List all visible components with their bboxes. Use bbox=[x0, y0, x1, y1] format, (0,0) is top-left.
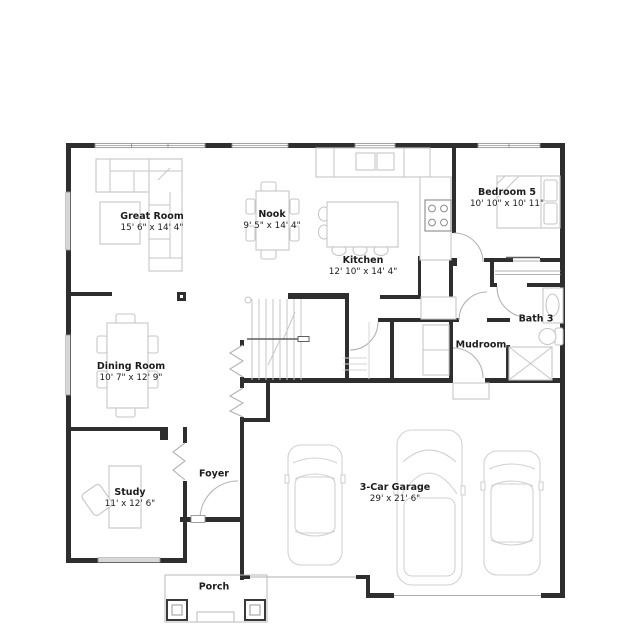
room-name: Kitchen bbox=[329, 255, 398, 267]
room-name: Foyer bbox=[199, 468, 229, 480]
room-name: Bedroom 5 bbox=[470, 187, 544, 199]
room-dims: 10' 7" x 12' 9" bbox=[97, 372, 165, 383]
room-label-bedroom5: Bedroom 5 10' 10" x 10' 11" bbox=[470, 187, 544, 210]
room-dims: 11' x 12' 6" bbox=[105, 498, 155, 509]
room-name: Nook bbox=[243, 209, 300, 221]
kitchen-sink-right bbox=[377, 153, 394, 170]
room-name: 3-Car Garage bbox=[360, 482, 430, 494]
bedroom-closet-rod bbox=[495, 271, 561, 275]
room-label-nook: Nook 9' 5" x 14' 4" bbox=[243, 209, 300, 232]
garage-step bbox=[453, 383, 489, 399]
room-label-foyer: Foyer bbox=[199, 468, 229, 480]
front-door-swing bbox=[200, 481, 238, 519]
bedroom5-door-swing bbox=[454, 233, 483, 262]
room-name: Mudroom bbox=[456, 339, 507, 351]
room-name: Study bbox=[105, 487, 155, 499]
room-dims: 9' 5" x 14' 4" bbox=[243, 220, 300, 231]
great-room-window-triple bbox=[95, 143, 205, 147]
car-icon-left bbox=[285, 445, 345, 565]
room-label-great-room: Great Room 15' 6" x 14' 4" bbox=[120, 211, 183, 234]
hall-closet-bifold-upper bbox=[230, 345, 243, 377]
mudroom-lockers bbox=[423, 325, 449, 375]
hall-closet-bifold-lower bbox=[230, 388, 243, 417]
car-icon-right bbox=[481, 451, 543, 575]
study-front-window bbox=[98, 558, 160, 562]
garage-entry-door-swing bbox=[453, 348, 483, 378]
room-label-dining-room: Dining Room 10' 7" x 12' 9" bbox=[97, 361, 165, 384]
great-room-side-window bbox=[66, 192, 70, 250]
room-name: Great Room bbox=[120, 211, 183, 223]
room-dims: 29' x 21' 6" bbox=[360, 493, 430, 504]
room-label-garage: 3-Car Garage 29' x 21' 6" bbox=[360, 482, 430, 505]
study-folding-door bbox=[173, 443, 185, 480]
porch-column-left bbox=[167, 600, 187, 620]
kitchen-island bbox=[319, 202, 399, 256]
room-dims: 12' 10" x 14' 4" bbox=[329, 266, 398, 277]
room-name: Porch bbox=[199, 581, 230, 593]
dining-side-window bbox=[66, 335, 70, 395]
room-name: Dining Room bbox=[97, 361, 165, 373]
pantry-door-swing bbox=[350, 322, 378, 350]
bath3-fixtures bbox=[509, 288, 563, 380]
front-door-sidelite bbox=[191, 516, 205, 523]
stairs bbox=[245, 297, 309, 380]
hall-bench bbox=[421, 297, 456, 319]
room-name: Bath 3 bbox=[519, 313, 554, 325]
van-icon-middle bbox=[394, 430, 465, 585]
porch-column-right bbox=[245, 600, 265, 620]
room-dims: 10' 10" x 10' 11" bbox=[470, 198, 544, 209]
stair-rail-end bbox=[298, 337, 309, 342]
mudroom-door-swing bbox=[459, 292, 487, 320]
room-label-mudroom: Mudroom bbox=[456, 339, 507, 351]
room-label-bath3: Bath 3 bbox=[519, 313, 554, 325]
toilet-icon bbox=[539, 328, 563, 345]
floor-plan: Great Room 15' 6" x 14' 4" Nook 9' 5" x … bbox=[0, 0, 640, 640]
range-icon bbox=[425, 200, 451, 231]
kitchen-sink-left bbox=[356, 153, 375, 170]
column-post bbox=[177, 292, 186, 301]
porch-step bbox=[197, 612, 234, 622]
room-label-kitchen: Kitchen 12' 10" x 14' 4" bbox=[329, 255, 398, 278]
kitchen-window bbox=[355, 143, 395, 147]
room-label-porch: Porch bbox=[199, 581, 230, 593]
room-label-study: Study 11' x 12' 6" bbox=[105, 487, 155, 510]
nook-window bbox=[232, 143, 288, 147]
shower-icon bbox=[509, 347, 552, 380]
room-dims: 15' 6" x 14' 4" bbox=[120, 222, 183, 233]
bedroom5-window-double bbox=[478, 143, 540, 147]
